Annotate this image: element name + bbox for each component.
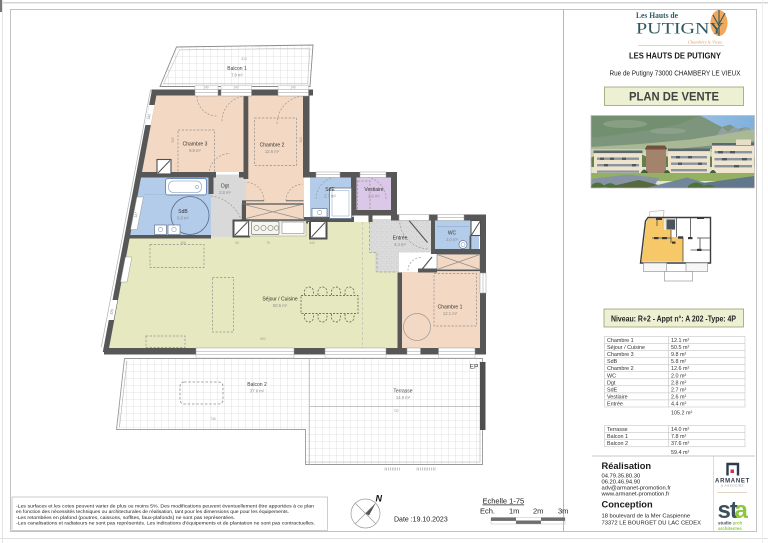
svg-text:340: 340 xyxy=(309,241,315,245)
svg-text:WC: WC xyxy=(607,373,616,379)
svg-text:9.8 m²: 9.8 m² xyxy=(671,352,686,358)
svg-text:50.5 m²: 50.5 m² xyxy=(671,345,689,351)
svg-text:Chambre 3: Chambre 3 xyxy=(607,352,634,358)
svg-text:N: N xyxy=(376,494,383,504)
svg-text:Balcon 1: Balcon 1 xyxy=(227,66,247,72)
svg-text:2.0 m²: 2.0 m² xyxy=(446,237,458,242)
svg-text:90: 90 xyxy=(235,241,239,245)
svg-text:5.8 m²: 5.8 m² xyxy=(671,359,686,365)
svg-text:Rue de Putigny 73000 CHAMBERY: Rue de Putigny 73000 CHAMBERY LE VIEUX xyxy=(610,71,741,78)
svg-text:7.8 m²: 7.8 m² xyxy=(231,73,243,78)
svg-text:EP: EP xyxy=(470,364,479,371)
svg-text:SdE: SdE xyxy=(325,187,335,193)
svg-text:358: 358 xyxy=(180,241,186,245)
svg-text:Chambre 2: Chambre 2 xyxy=(607,366,634,372)
svg-text:14.0 m²: 14.0 m² xyxy=(396,395,411,400)
svg-text:SdB: SdB xyxy=(178,209,188,215)
svg-text:9.8 m²: 9.8 m² xyxy=(189,148,201,153)
svg-text:LES HAUTS DE PUTIGNY: LES HAUTS DE PUTIGNY xyxy=(629,52,721,61)
svg-text:140: 140 xyxy=(233,86,239,90)
svg-text:310: 310 xyxy=(241,57,247,61)
svg-text:studio arch: studio arch xyxy=(718,521,743,526)
svg-text:SdE: SdE xyxy=(607,387,618,393)
svg-text:2.8 m²: 2.8 m² xyxy=(219,190,231,195)
svg-text:2.0 m²: 2.0 m² xyxy=(671,373,686,379)
svg-text:-Les canalisations et radiateu: -Les canalisations et radiateurs ne sont… xyxy=(16,521,315,526)
svg-text:Balcon 1: Balcon 1 xyxy=(607,434,628,440)
svg-text:305: 305 xyxy=(171,137,175,143)
svg-text:736: 736 xyxy=(210,417,216,421)
svg-text:105.2 m²: 105.2 m² xyxy=(671,411,692,417)
svg-text:Niveau: R+2 - Appt n°: A 202: Niveau: R+2 - Appt n°: A 202 -Type: 4P xyxy=(611,315,736,324)
svg-text:Vestiaire: Vestiaire xyxy=(364,187,383,193)
svg-text:59.4 m²: 59.4 m² xyxy=(671,450,689,456)
svg-text:12.6 m²: 12.6 m² xyxy=(671,366,689,372)
svg-text:Entrée: Entrée xyxy=(393,236,408,242)
svg-text:Chambre 1: Chambre 1 xyxy=(607,338,634,344)
svg-text:343: 343 xyxy=(299,137,303,143)
svg-text:Chambre 1: Chambre 1 xyxy=(438,305,463,311)
svg-text:12.6 m²: 12.6 m² xyxy=(265,149,280,154)
svg-text:www.armanet-promotion.fr: www.armanet-promotion.fr xyxy=(601,492,670,498)
svg-text:Réalisation: Réalisation xyxy=(602,461,652,471)
svg-text:Les Hauts de: Les Hauts de xyxy=(636,10,678,20)
svg-text:732: 732 xyxy=(393,409,399,413)
svg-text:18 boulevard de la Mer Caspien: 18 boulevard de la Mer Caspienne xyxy=(602,514,691,520)
svg-text:2.6 m²: 2.6 m² xyxy=(368,194,380,199)
svg-text:Entrée: Entrée xyxy=(607,402,623,408)
svg-text:PLAN DE VENTE: PLAN DE VENTE xyxy=(629,90,719,104)
svg-text:7.8 m²: 7.8 m² xyxy=(671,434,686,440)
svg-text:2.7 m²: 2.7 m² xyxy=(324,194,336,199)
svg-text:2.6 m²: 2.6 m² xyxy=(671,394,686,400)
svg-text:4.4 m²: 4.4 m² xyxy=(671,402,686,408)
svg-text:37.6 m²: 37.6 m² xyxy=(671,441,689,447)
svg-text:Conception: Conception xyxy=(602,500,653,510)
svg-text:SdB: SdB xyxy=(607,359,618,365)
svg-text:architectes: architectes xyxy=(718,526,742,531)
svg-text:12.1 m²: 12.1 m² xyxy=(443,311,458,316)
svg-text:1m: 1m xyxy=(509,507,519,516)
svg-text:12.1 m²: 12.1 m² xyxy=(671,338,689,344)
svg-text:Chambre 2: Chambre 2 xyxy=(260,143,285,149)
svg-text:3m: 3m xyxy=(558,507,568,516)
svg-text:Echelle 1-75: Echelle 1-75 xyxy=(483,497,525,506)
svg-text:73372 LE BOURGET DU LAC CEDEX: 73372 LE BOURGET DU LAC CEDEX xyxy=(602,521,702,527)
svg-text:Vestiaire: Vestiaire xyxy=(607,394,628,400)
svg-text:Balcon 2: Balcon 2 xyxy=(247,382,267,388)
svg-text:Chambre 3: Chambre 3 xyxy=(183,142,208,148)
svg-text:4.4 m²: 4.4 m² xyxy=(394,242,406,247)
svg-text:240: 240 xyxy=(203,86,209,90)
svg-text:Chambéry le Vieux: Chambéry le Vieux xyxy=(688,40,722,45)
svg-text:2.8 m²: 2.8 m² xyxy=(671,380,686,386)
svg-text:5.8 m²: 5.8 m² xyxy=(177,216,189,221)
svg-text:Terrasse: Terrasse xyxy=(607,427,628,433)
svg-text:PUTIGNY: PUTIGNY xyxy=(636,21,725,38)
svg-text:37.6 m²: 37.6 m² xyxy=(250,389,265,394)
svg-text:Dgt: Dgt xyxy=(221,184,229,190)
svg-text:140: 140 xyxy=(290,86,296,90)
svg-text:50.5 m²: 50.5 m² xyxy=(273,303,288,308)
svg-text:Séjour / Cuisine: Séjour / Cuisine xyxy=(607,345,645,351)
svg-text:2m: 2m xyxy=(533,507,543,516)
svg-text:2.7 m²: 2.7 m² xyxy=(671,387,686,393)
svg-text:-Les surfaces et les cotes peu: -Les surfaces et les cotes peuvent varie… xyxy=(16,504,315,509)
svg-text:Date :19.10.2023: Date :19.10.2023 xyxy=(394,517,448,524)
svg-text:& ASSOCIÉS: & ASSOCIÉS xyxy=(721,483,744,488)
svg-text:-Les retombées en plafond (pou: -Les retombées en plafond (poutres, cais… xyxy=(16,515,235,520)
svg-text:14.0 m²: 14.0 m² xyxy=(671,427,689,433)
svg-text:WC: WC xyxy=(448,231,457,237)
svg-text:692: 692 xyxy=(260,337,266,341)
svg-text:en fonction des nécessités tec: en fonction des nécessités techniques ou… xyxy=(16,509,289,514)
svg-text:Terrasse: Terrasse xyxy=(393,389,412,395)
svg-text:Séjour / Cuisine: Séjour / Cuisine xyxy=(262,297,298,303)
svg-text:Ech.: Ech. xyxy=(480,507,495,516)
svg-text:75: 75 xyxy=(266,241,270,245)
svg-text:Dgt: Dgt xyxy=(607,380,616,386)
svg-text:Balcon 2: Balcon 2 xyxy=(607,441,628,447)
